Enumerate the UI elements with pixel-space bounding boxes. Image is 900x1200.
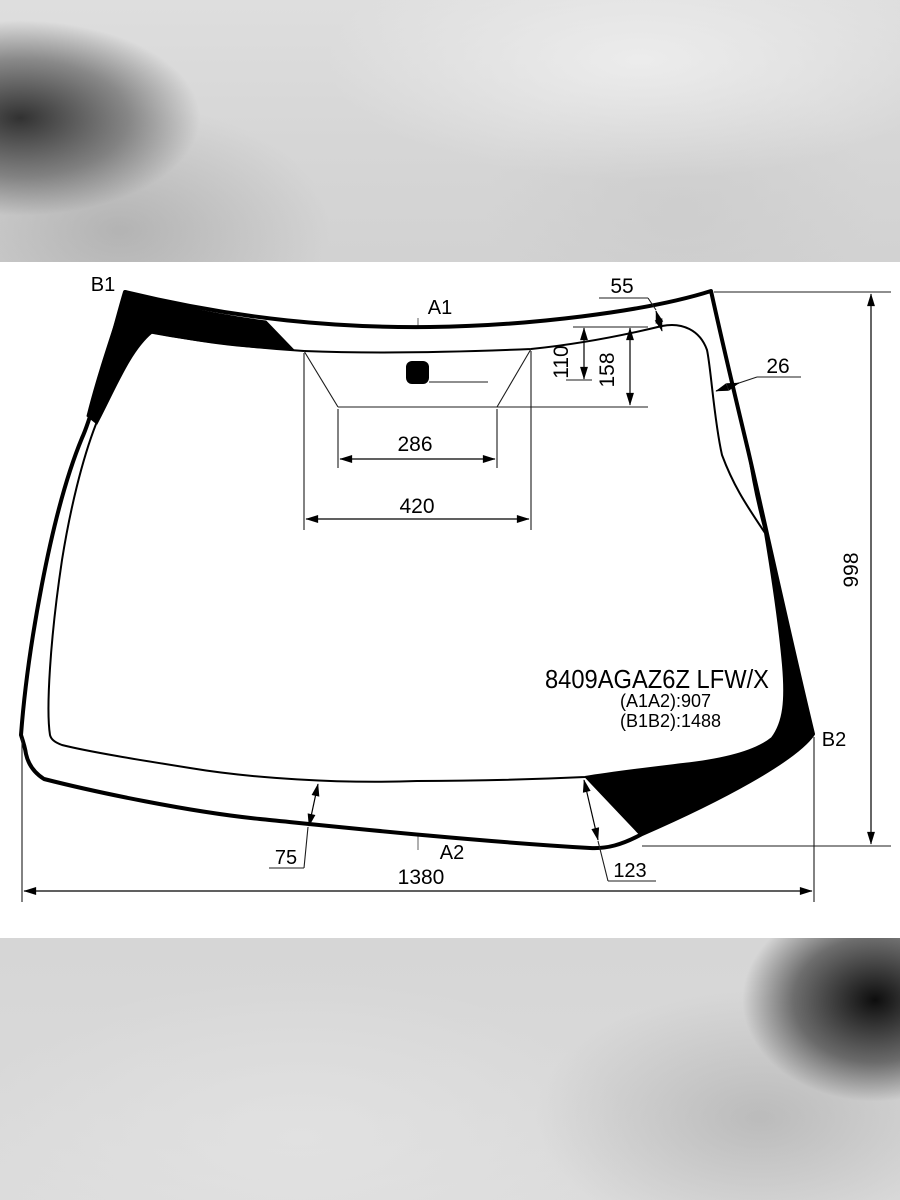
dim-1380-value: 1380 (398, 866, 445, 889)
dim-55-value: 55 (610, 275, 633, 298)
part-code: 8409AGAZ6Z LFW/X (545, 664, 769, 694)
label-b1: B1 (91, 274, 115, 296)
dim-286-value: 286 (397, 433, 432, 456)
dim-420-value: 420 (399, 495, 434, 518)
dim-110-value: 110 (550, 345, 573, 378)
dim-75-value: 75 (275, 847, 297, 869)
dim-998-value: 998 (840, 552, 863, 587)
part-b1b2: (B1B2):1488 (620, 711, 721, 731)
label-a1: A1 (428, 297, 452, 319)
product-image: 55 110 158 26 (0, 0, 900, 1200)
label-b2: B2 (822, 729, 846, 751)
dim-26-value: 26 (766, 355, 789, 378)
windshield-diagram-panel: 55 110 158 26 (0, 262, 900, 938)
blurred-photo-top (0, 0, 900, 262)
blurred-photo-bottom (0, 938, 900, 1200)
mirror-mount (406, 361, 429, 384)
dim-123-value: 123 (613, 860, 646, 882)
label-a2: A2 (440, 842, 464, 864)
part-a1a2: (A1A2):907 (620, 691, 711, 711)
dim-158-value: 158 (596, 352, 619, 387)
windshield-schematic: 55 110 158 26 (0, 262, 900, 938)
